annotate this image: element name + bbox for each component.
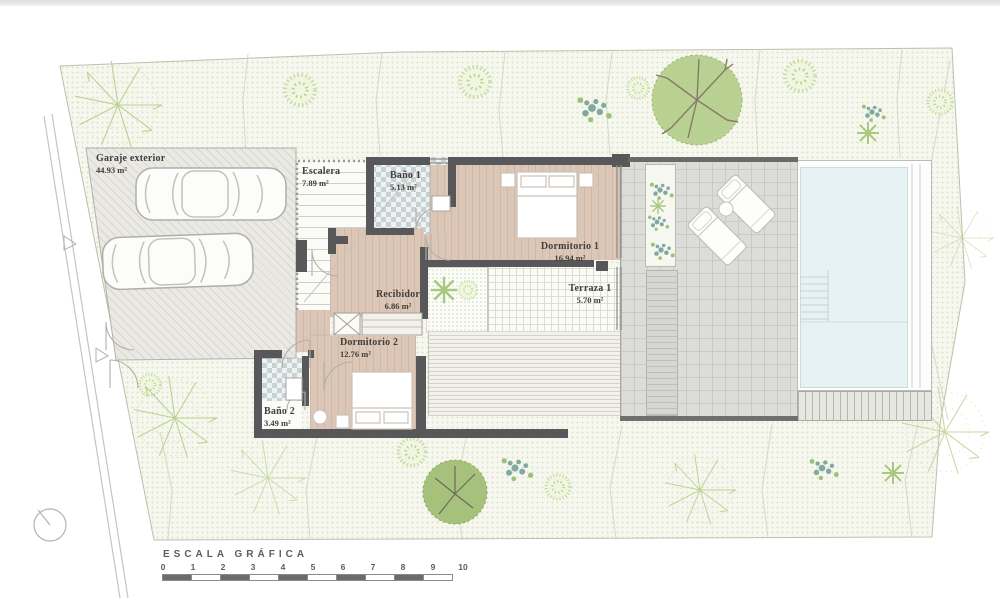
scale-tick: 1	[191, 562, 196, 572]
survey-circle-symbol	[34, 509, 66, 541]
scale-tick: 8	[401, 562, 406, 572]
planter-plants	[648, 183, 675, 260]
label-bano-1: Baño 1 5.13 m²	[390, 170, 450, 192]
floor-plan-canvas: Garaje exterior 44.93 m² Escalera 7.89 m…	[0, 0, 1000, 600]
scale-tick: 9	[431, 562, 436, 572]
bed-dormitorio-1	[501, 172, 593, 238]
scale-tick: 5	[311, 562, 316, 572]
scale-bar-title: ESCALA GRÁFICA	[163, 549, 493, 560]
garage-gate-swings	[106, 322, 138, 388]
label-bano-2: Baño 2 3.49 m²	[264, 406, 314, 428]
closets	[334, 313, 422, 335]
car-icon	[136, 168, 286, 220]
label-escalera: Escalera 7.89 m²	[302, 166, 372, 188]
scale-bar-segments	[163, 574, 465, 581]
scale-tick: 4	[281, 562, 286, 572]
bed-dormitorio-2	[313, 372, 412, 429]
scale-tick: 10	[458, 562, 467, 572]
scale-tick: 2	[221, 562, 226, 572]
architecture-layer	[0, 0, 1000, 600]
car-icon	[102, 233, 254, 290]
label-terraza-1: Terraza 1 5.70 m²	[540, 283, 640, 305]
scale-bar: ESCALA GRÁFICA 0 1 2 3 4 5 6 7 8 9 10	[163, 549, 493, 581]
scale-tick: 0	[161, 562, 166, 572]
label-dormitorio-2: Dormitorio 2 12.76 m²	[340, 337, 430, 359]
side-table-icon	[719, 202, 733, 216]
scale-tick: 3	[251, 562, 256, 572]
scale-tick: 6	[341, 562, 346, 572]
scale-bar-ticks: 0 1 2 3 4 5 6 7 8 9 10	[163, 562, 493, 573]
pool-lines	[800, 164, 920, 388]
label-recibidor: Recibidor 6.86 m²	[358, 289, 438, 311]
pool-steps	[800, 270, 828, 322]
scale-tick: 7	[371, 562, 376, 572]
label-garaje-exterior: Garaje exterior 44.93 m²	[96, 153, 206, 175]
label-dormitorio-1: Dormitorio 1 16.94 m²	[510, 241, 630, 263]
